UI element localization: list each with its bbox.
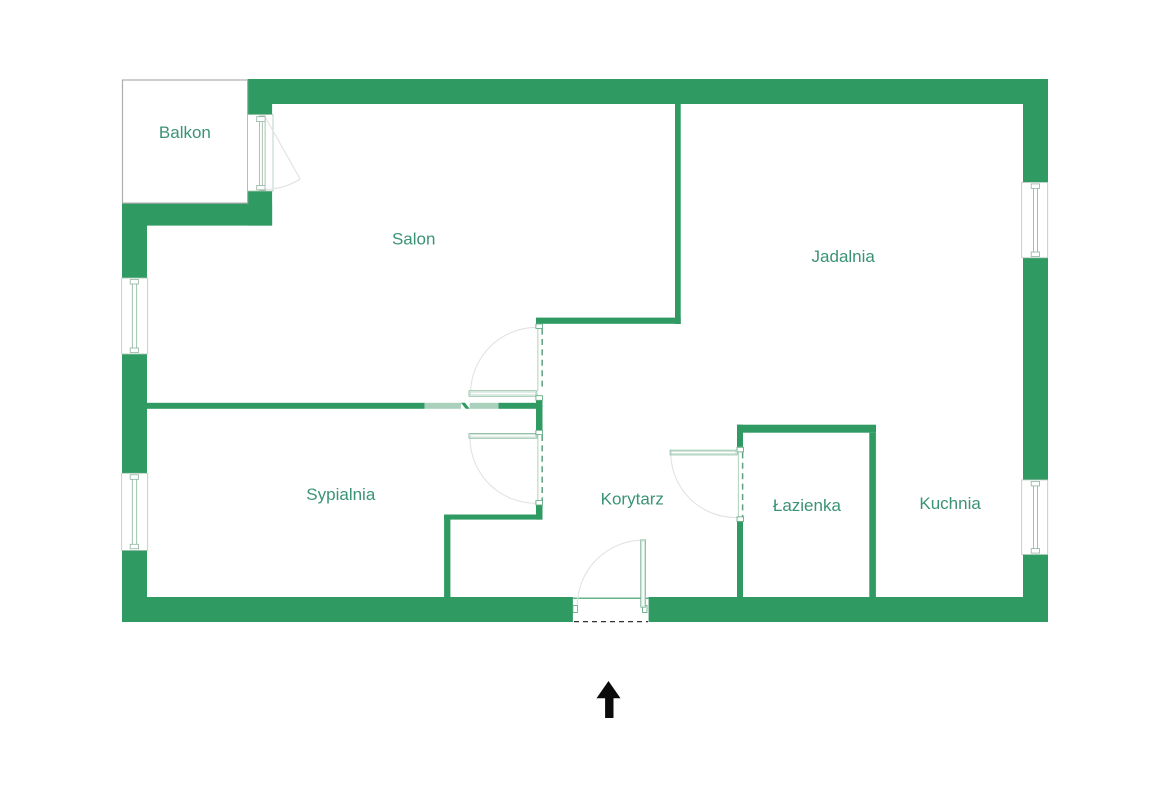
svg-text:Balkon: Balkon [159,123,211,142]
svg-text:Kuchnia: Kuchnia [919,494,981,513]
svg-text:Sypialnia: Sypialnia [306,485,376,504]
svg-text:Salon: Salon [392,230,435,249]
svg-text:Jadalnia: Jadalnia [812,247,876,266]
svg-text:Łazienka: Łazienka [773,496,842,515]
svg-text:Korytarz: Korytarz [601,489,664,508]
